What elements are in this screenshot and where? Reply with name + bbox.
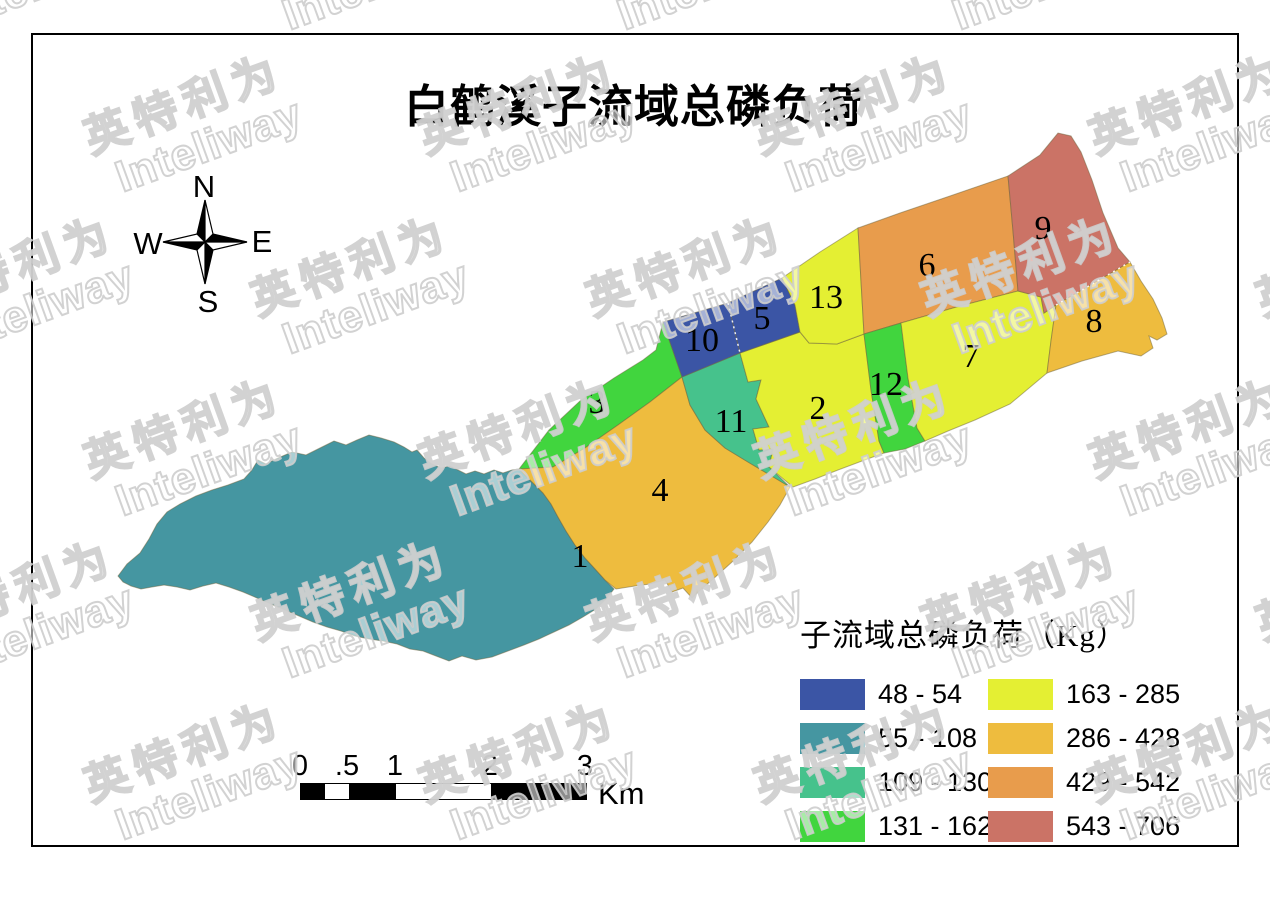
map-frame <box>31 33 1239 847</box>
map-canvas: 白鹤溪子流域总磷负荷 N E S W 12345678910111213 子流域… <box>0 0 1270 897</box>
